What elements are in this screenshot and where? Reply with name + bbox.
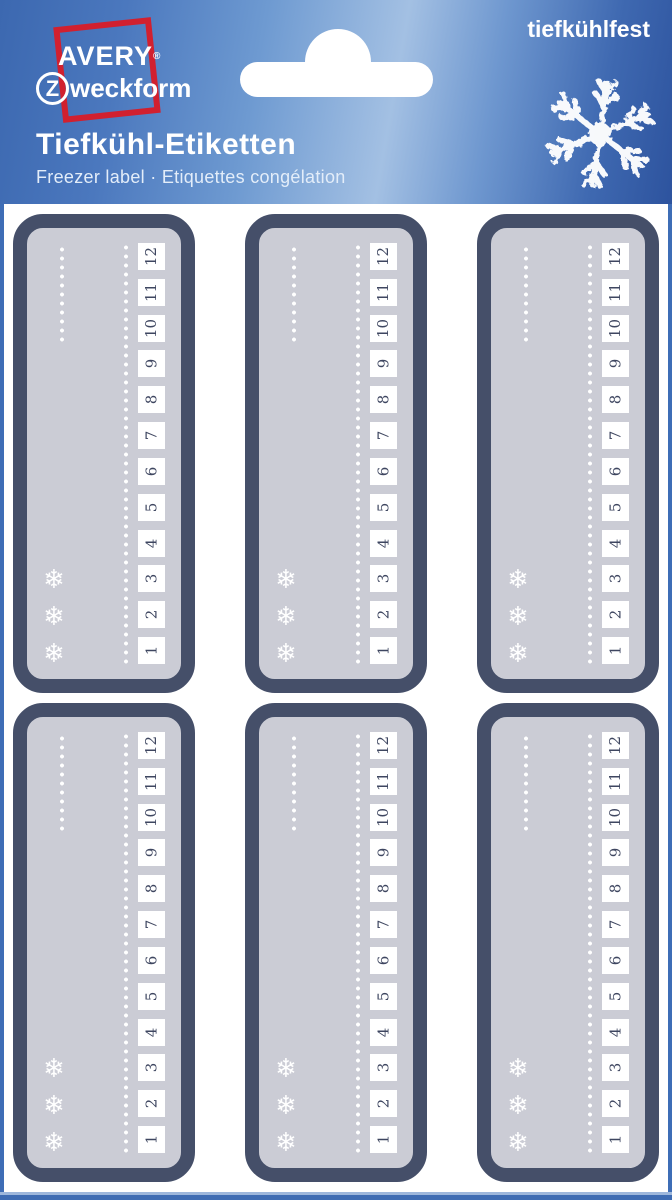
month-number-box: 10 [602,315,629,342]
freezer-label: ❄❄❄ 121110987654321 [13,214,195,693]
dotted-writing-line [524,245,528,345]
month-number-box: 10 [370,804,397,831]
dotted-separator-line [356,243,360,664]
month-number: 7 [376,920,391,930]
month-number: 7 [144,431,159,441]
product-subtitle: Freezer label · Etiquettes congélation [36,167,346,188]
bottom-frame-strip [0,1192,672,1200]
snowflake-icon: ❄ [507,604,529,630]
month-number-box: 4 [138,530,165,557]
month-number: 6 [144,467,159,477]
month-number: 4 [608,538,623,548]
month-number: 3 [376,574,391,584]
dotted-writing-line [60,734,64,834]
month-number-box: 9 [602,350,629,377]
month-number: 11 [376,283,391,302]
month-number-box: 10 [370,315,397,342]
snowflake-icon: ❄ [507,641,529,667]
dotted-separator-line [588,243,592,664]
month-number-box: 5 [138,494,165,521]
month-number: 4 [144,538,159,548]
month-number-box: 7 [602,911,629,938]
month-number: 8 [144,884,159,894]
month-number: 7 [608,431,623,441]
month-number-box: 12 [138,243,165,270]
month-number-box: 4 [138,1019,165,1046]
month-number: 6 [376,467,391,477]
hang-hole-bump [305,29,371,95]
month-number: 9 [376,848,391,858]
month-number-box: 9 [370,350,397,377]
zweckform-text: weckform [70,73,191,104]
month-number-box: 3 [370,565,397,592]
month-number-box: 6 [602,947,629,974]
month-number: 1 [608,646,623,656]
month-number: 5 [376,502,391,512]
month-number: 4 [144,1027,159,1037]
label-sheet: ❄❄❄ 121110987654321 ❄❄❄ 121110987654321 … [4,204,668,1182]
month-number: 10 [144,808,159,827]
month-number-box: 5 [370,983,397,1010]
month-number-box: 6 [138,458,165,485]
month-number: 3 [608,574,623,584]
month-number-box: 10 [138,315,165,342]
month-number: 2 [144,1099,159,1109]
snowflake-column: ❄❄❄ [39,567,69,667]
month-number: 11 [376,772,391,791]
snowflake-column: ❄❄❄ [39,1056,69,1156]
snowflake-icon: ❄ [275,604,297,630]
dotted-separator-line [124,732,128,1153]
month-number-box: 4 [370,1019,397,1046]
month-number-box: 3 [602,565,629,592]
month-number-box: 1 [138,1126,165,1153]
month-number: 2 [144,610,159,620]
month-number-box: 1 [370,637,397,664]
month-number-box: 12 [602,243,629,270]
product-title: Tiefkühl-Etiketten [36,128,296,162]
month-number: 8 [144,395,159,405]
month-number-box: 12 [602,732,629,759]
snowflake-icon: ❄ [43,604,65,630]
month-number-box: 12 [138,732,165,759]
month-number: 1 [376,646,391,656]
month-number: 11 [144,283,159,302]
month-number: 2 [608,610,623,620]
snowflake-icon: ❄ [275,567,297,593]
month-number: 6 [144,956,159,966]
month-number: 7 [608,920,623,930]
month-number-box: 2 [138,1090,165,1117]
month-number-box: 5 [602,494,629,521]
month-number: 1 [376,1135,391,1145]
snowflake-icon: ❄ [275,1093,297,1119]
month-number-box: 8 [602,386,629,413]
snowflake-icon: ❄ [507,567,529,593]
month-number-box: 6 [138,947,165,974]
freezer-label: ❄❄❄ 121110987654321 [245,214,427,693]
month-number-box: 2 [370,601,397,628]
package-header: AVERY® Zweckform tiefkühlfest Tiefkühl-E… [0,0,672,204]
snowflake-icon: ❄ [507,1130,529,1156]
snowflake-column: ❄❄❄ [271,567,301,667]
month-number-box: 2 [602,1090,629,1117]
month-number-box: 8 [370,386,397,413]
freezerproof-claim: tiefkühlfest [527,16,650,43]
month-number-box: 11 [138,768,165,795]
month-number-box: 2 [370,1090,397,1117]
month-number: 4 [608,1027,623,1037]
snowflake-icon: ❄ [43,1056,65,1082]
month-number-box: 7 [370,422,397,449]
snowflake-icon: ❄ [43,1093,65,1119]
month-number-box: 9 [138,839,165,866]
month-number: 10 [376,808,391,827]
month-number: 5 [376,991,391,1001]
month-number: 11 [144,772,159,791]
month-number-box: 5 [138,983,165,1010]
month-number-box: 11 [138,279,165,306]
month-number-box: 8 [138,875,165,902]
month-number: 3 [144,1063,159,1073]
month-number: 1 [144,646,159,656]
month-number-box: 5 [370,494,397,521]
month-number: 8 [608,884,623,894]
month-number-box: 2 [138,601,165,628]
month-number-box: 1 [602,1126,629,1153]
month-number: 12 [376,736,391,755]
month-number: 5 [608,991,623,1001]
freezer-label: ❄❄❄ 121110987654321 [477,703,659,1182]
freezer-label: ❄❄❄ 121110987654321 [477,214,659,693]
month-number: 11 [608,283,623,302]
month-number-box: 4 [370,530,397,557]
snowflake-icon: ❄ [43,1130,65,1156]
month-number: 7 [376,431,391,441]
month-number-box: 3 [138,565,165,592]
month-number: 12 [608,736,623,755]
month-number-column: 121110987654321 [370,732,397,1153]
month-number: 9 [376,359,391,369]
month-number-box: 1 [370,1126,397,1153]
snowflake-icon: ❄ [43,567,65,593]
month-number-box: 12 [370,243,397,270]
month-number-box: 3 [370,1054,397,1081]
month-number: 10 [608,319,623,338]
registered-mark: ® [153,51,161,62]
month-number: 1 [144,1135,159,1145]
month-number: 9 [144,359,159,369]
month-number-box: 7 [370,911,397,938]
month-number-box: 7 [138,911,165,938]
month-number-box: 10 [138,804,165,831]
month-number-box: 3 [602,1054,629,1081]
month-number-box: 11 [370,768,397,795]
dotted-writing-line [292,734,296,834]
label-panel: ❄❄❄ 121110987654321 ❄❄❄ 121110987654321 … [0,204,672,1200]
month-number: 2 [376,610,391,620]
month-number: 9 [608,848,623,858]
month-number: 8 [376,884,391,894]
month-number-box: 5 [602,983,629,1010]
snowflake-icon: ❄ [275,641,297,667]
month-number-box: 3 [138,1054,165,1081]
month-number: 4 [376,538,391,548]
month-number: 3 [144,574,159,584]
snowflake-icon: ❄ [275,1056,297,1082]
month-number-box: 4 [602,1019,629,1046]
month-number: 9 [608,359,623,369]
month-number: 12 [376,247,391,266]
month-number: 11 [608,772,623,791]
freezer-label: ❄❄❄ 121110987654321 [245,703,427,1182]
month-number: 3 [376,1063,391,1073]
month-number: 5 [144,991,159,1001]
month-number: 6 [608,956,623,966]
month-number-box: 7 [602,422,629,449]
month-number: 6 [376,956,391,966]
month-number: 2 [608,1099,623,1109]
month-number-box: 6 [370,947,397,974]
snowflake-icon: ❄ [43,641,65,667]
month-number-box: 7 [138,422,165,449]
month-number: 3 [608,1063,623,1073]
month-number: 10 [376,319,391,338]
month-number: 12 [608,247,623,266]
freezer-label: ❄❄❄ 121110987654321 [13,703,195,1182]
snowflake-column: ❄❄❄ [503,567,533,667]
month-number-box: 8 [138,386,165,413]
month-number-box: 6 [602,458,629,485]
month-number-box: 11 [602,279,629,306]
month-number: 12 [144,736,159,755]
month-number: 10 [608,808,623,827]
month-number-box: 8 [370,875,397,902]
month-number: 8 [376,395,391,405]
dotted-writing-line [292,245,296,345]
month-number: 4 [376,1027,391,1037]
dotted-writing-line [60,245,64,345]
month-number-box: 1 [138,637,165,664]
dotted-separator-line [356,732,360,1153]
brand-name-zweckform: Zweckform [36,72,191,105]
month-number-column: 121110987654321 [602,243,629,664]
month-number-column: 121110987654321 [370,243,397,664]
dotted-separator-line [124,243,128,664]
z-circle-icon: Z [36,72,69,105]
month-number-box: 4 [602,530,629,557]
month-number: 5 [608,502,623,512]
snowflake-column: ❄❄❄ [503,1056,533,1156]
brand-name-avery: AVERY® [58,41,161,72]
month-number-box: 8 [602,875,629,902]
month-number-box: 10 [602,804,629,831]
month-number-box: 9 [370,839,397,866]
snowflake-icon: ❄ [275,1130,297,1156]
month-number-column: 121110987654321 [602,732,629,1153]
month-number: 9 [144,848,159,858]
month-number-box: 9 [138,350,165,377]
month-number: 10 [144,319,159,338]
snowflake-column: ❄❄❄ [271,1056,301,1156]
snowflake-icon: ❄ [507,1056,529,1082]
month-number: 8 [608,395,623,405]
month-number: 7 [144,920,159,930]
month-number-box: 1 [602,637,629,664]
header-snowflake-icon [536,72,664,196]
month-number-box: 12 [370,732,397,759]
month-number: 6 [608,467,623,477]
dotted-separator-line [588,732,592,1153]
month-number: 12 [144,247,159,266]
month-number-box: 6 [370,458,397,485]
avery-text: AVERY [58,41,153,71]
month-number-box: 11 [602,768,629,795]
month-number: 5 [144,502,159,512]
month-number: 2 [376,1099,391,1109]
month-number-box: 11 [370,279,397,306]
snowflake-icon: ❄ [507,1093,529,1119]
dotted-writing-line [524,734,528,834]
brand-logo: AVERY® Zweckform [30,14,240,126]
month-number-box: 2 [602,601,629,628]
month-number-column: 121110987654321 [138,243,165,664]
month-number-column: 121110987654321 [138,732,165,1153]
month-number: 1 [608,1135,623,1145]
month-number-box: 9 [602,839,629,866]
